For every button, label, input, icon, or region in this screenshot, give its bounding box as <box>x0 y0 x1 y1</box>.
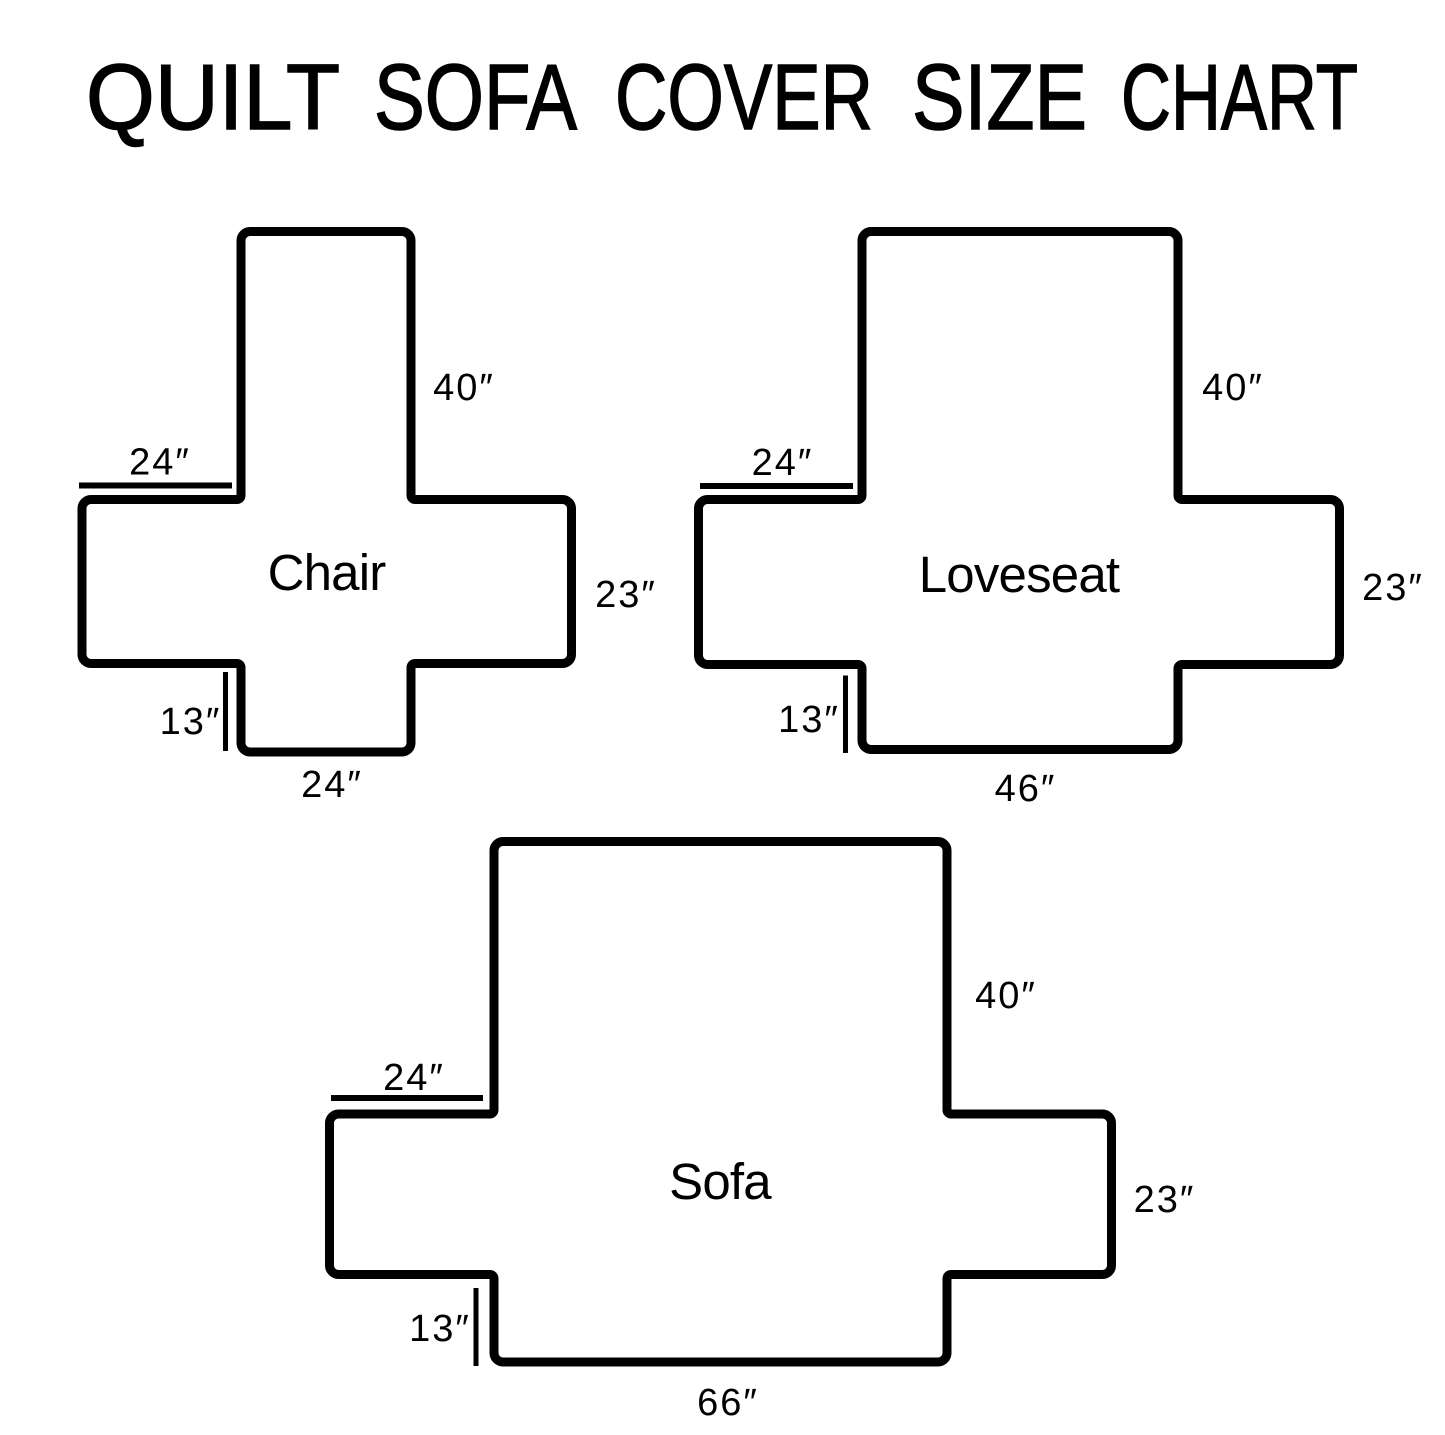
svg-text:66″: 66″ <box>697 1382 759 1424</box>
svg-text:SIZE: SIZE <box>912 45 1087 149</box>
svg-text:23″: 23″ <box>1362 567 1424 609</box>
svg-text:COVER: COVER <box>615 45 873 149</box>
svg-text:Loveseat: Loveseat <box>919 546 1120 603</box>
svg-text:40″: 40″ <box>1202 367 1264 409</box>
svg-text:46″: 46″ <box>995 768 1057 810</box>
svg-text:13″: 13″ <box>409 1308 471 1350</box>
svg-text:13″: 13″ <box>778 699 840 741</box>
svg-text:23″: 23″ <box>595 574 657 616</box>
svg-text:24″: 24″ <box>129 442 191 484</box>
svg-text:QUILT: QUILT <box>86 45 340 149</box>
svg-text:24″: 24″ <box>383 1057 445 1099</box>
svg-text:24″: 24″ <box>752 442 814 484</box>
svg-text:Chair: Chair <box>268 544 387 601</box>
svg-text:Sofa: Sofa <box>669 1153 772 1210</box>
svg-text:23″: 23″ <box>1134 1179 1196 1221</box>
svg-text:40″: 40″ <box>433 367 495 409</box>
svg-text:SOFA: SOFA <box>374 45 577 149</box>
svg-text:40″: 40″ <box>975 975 1037 1017</box>
svg-text:CHART: CHART <box>1121 45 1358 149</box>
svg-text:13″: 13″ <box>160 701 222 743</box>
svg-text:24″: 24″ <box>301 764 363 806</box>
